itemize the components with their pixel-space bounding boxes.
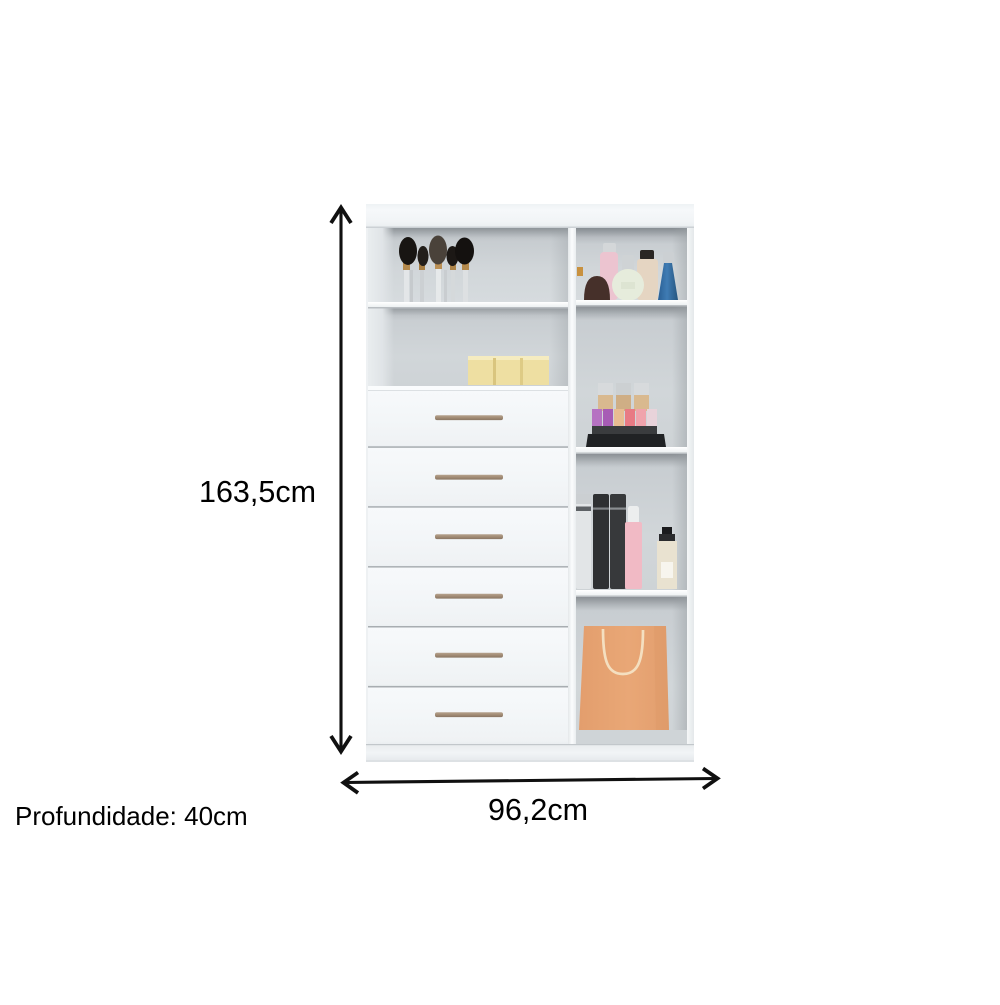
svg-text:96,2cm: 96,2cm xyxy=(488,793,588,827)
svg-text:Profundidade: 40cm: Profundidade: 40cm xyxy=(15,801,248,831)
svg-text:163,5cm: 163,5cm xyxy=(199,475,316,509)
